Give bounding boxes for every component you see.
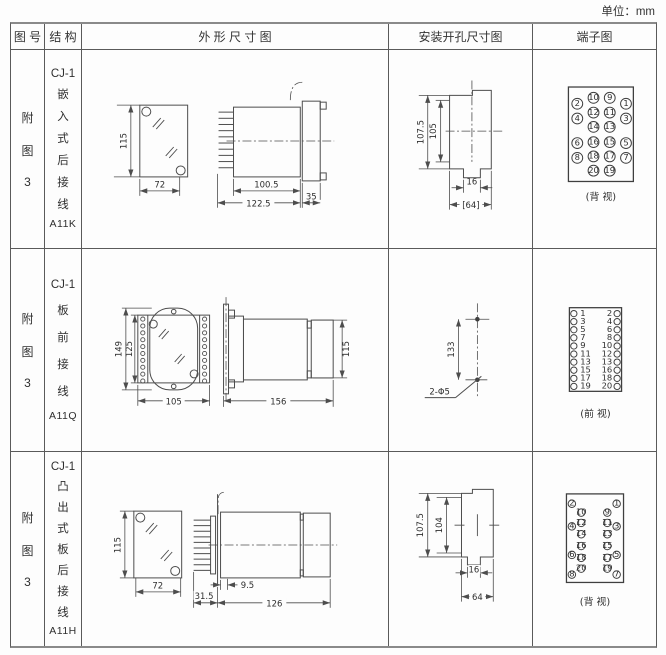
outline-drawing-a11h: 115 72 9.5 31.5 126 [82,452,388,646]
model-code: A11Q [49,410,77,422]
terminal-pin [571,318,577,324]
figure-char: 附 [21,109,33,126]
dim-flange: 35 [306,191,317,201]
dim-hole-spacing: 133 [446,341,456,357]
terminal-pin-number: 14 [576,528,587,538]
outline-drawing-cell-a11h: 115 72 9.5 31.5 126 [82,452,389,646]
glass-hatch [146,523,157,534]
structure-char: 后 [57,152,69,168]
header-outline-dimensions: 外 形 尺 寸 图 [82,24,389,50]
screw-terminal [141,317,145,321]
terminal-pin [614,350,620,356]
structure-cell-a11q: CJ-1 板 前 接 线 A11Q [45,249,82,452]
terminal-pin-number: 19 [580,380,591,390]
terminal-pin [614,326,620,332]
mounting-drawing-a11h: 107.5 104 16 64 [389,452,532,646]
header-terminal-diagram: 端子图 [533,24,656,50]
terminal-pin [614,334,620,340]
screw-terminal [203,337,207,341]
terminal-pin-number: 13 [604,121,615,131]
dim-inner-height: 125 [124,340,134,356]
terminal-pin-number: 11 [604,106,615,116]
terminal-diagram-a11k: 101214161820 91113151719 2468 1357 (背 视) [533,50,656,249]
screw-terminal [141,372,145,376]
glass-hatch [153,118,164,129]
screw-terminal [203,344,207,348]
terminal-pin-number: 16 [588,136,599,146]
terminal-pin [571,350,577,356]
screw-terminal [141,365,145,369]
terminal-pin-number: 15 [604,136,615,146]
structure-char: 板 [57,541,69,557]
screw-terminal [141,351,145,355]
dim-offset: 9.5 [241,580,254,590]
figure-number-cell: 附 图 3 [11,452,45,646]
terminal-pin-number: 4 [569,520,574,530]
outline-drawing-cell-a11q: 149 125 105 156 115 [82,249,389,452]
terminal-pin-number: 14 [588,121,599,131]
screw-terminal [203,330,207,334]
unit-label: 单位：mm [601,3,655,19]
terminal-pin-number: 10 [576,507,587,517]
terminal-pin [614,318,620,324]
terminal-strip [203,317,207,383]
terminal-pin-number: 8 [569,569,574,579]
terminal-pin-number: 19 [602,563,613,573]
figure-number-cell: 附 图 3 [11,249,45,452]
terminal-strip [141,317,145,383]
dim-side-height: 115 [341,340,351,356]
terminal-pin-number: 5 [623,137,628,147]
terminal-pin-number: 1 [614,498,619,508]
terminal-pin-number: 17 [602,552,613,562]
outline-drawing-a11k: 115 72 100.5 122.5 35 [82,50,388,249]
screw-terminal [141,337,145,341]
structure-char: 前 [57,329,69,345]
screw-terminal [203,372,207,376]
terminal-diagram-a11q: 135791113151719 2468101213161820 (前 视) [533,249,656,452]
terminal-pin-number: 8 [575,152,580,162]
dimension-table: 图 号 结 构 外 形 尺 寸 图 安装开孔尺寸图 端子图 附 图 3 CJ-1… [10,22,657,648]
terminal-pin-number: 3 [614,520,619,530]
header-structure: 结 构 [45,24,82,50]
terminal-pin [571,310,577,316]
figure-char: 3 [24,376,31,390]
structure-char: 接 [57,174,69,190]
glass-hatch [161,550,172,561]
dim-body-length: 100.5 [254,179,278,189]
dim-body-length: 156 [270,396,286,406]
screw-terminal [203,323,207,327]
figure-char: 3 [24,175,31,189]
terminal-pin [614,367,620,373]
structure-char: 线 [57,383,69,399]
dim-outer-height: 149 [113,340,123,356]
structure-char: 式 [57,520,69,536]
terminal-pin-number: 19 [604,164,615,174]
dim-cutout-width: 64 [472,592,483,602]
terminal-pin [614,375,620,381]
structure-char: 凸 [57,478,69,494]
dim-pin-length: 31.5 [195,591,214,601]
terminal-pin [614,383,620,389]
dim-slot-width: 16 [467,176,478,186]
glass-hatch [175,353,185,363]
dim-front-width: 105 [166,396,182,406]
screw-terminal [203,365,207,369]
terminal-pin-number: 2 [569,498,574,508]
model-label: CJ-1 [51,279,75,291]
terminal-pin-number: 10 [588,92,599,102]
structure-char: 接 [57,583,69,599]
glass-hatch [166,147,177,158]
terminal-pin [571,383,577,389]
pin-rows [219,112,234,168]
figure-char: 附 [21,509,33,526]
mounting-hole [475,316,480,321]
terminal-diagram-cell-a11h: 101214161820 91113151719 2468 1357 (背 视) [533,452,656,646]
screw-terminal [203,351,207,355]
terminal-pin-number: 20 [602,380,613,390]
figure-char: 图 [21,142,33,159]
screw-terminal [141,330,145,334]
structure-char: 板 [57,302,69,318]
terminal-pin-number: 7 [623,152,628,162]
structure-char: 出 [57,499,69,515]
terminal-pin-number: 6 [575,137,580,147]
model-code: A11H [49,625,77,637]
dim-total-length: 122.5 [246,198,270,208]
figure-number-cell: 附 图 3 [11,50,45,249]
terminal-diagram-cell-a11k: 101214161820 91113151719 2468 1357 (背 视) [533,50,656,249]
terminal-pin-number: 16 [576,540,587,550]
outline-drawing-a11q: 149 125 105 156 115 [82,249,388,452]
model-label: CJ-1 [51,68,75,80]
terminal-pin [614,342,620,348]
structure-cell-a11k: CJ-1 嵌 入 式 后 接 线 A11K [45,50,82,249]
dim-slot-width: 16 [469,564,480,574]
screw-terminal [141,358,145,362]
terminal-pin-number: 9 [605,507,610,517]
terminal-pin-number: 4 [575,112,580,122]
terminal-view-label: (前 视) [580,406,610,419]
terminal-pin-number: 12 [576,517,587,527]
figure-char: 图 [21,542,33,559]
mounting-drawing-cell-a11k: 107.5 105 16 [64] [389,50,533,249]
screw-terminal [203,317,207,321]
terminal-view-label: (背 视) [580,595,610,608]
figure-char: 附 [21,310,33,327]
dim-cutout-outer-height: 107.5 [415,513,425,537]
terminal-pin [571,326,577,332]
structure-char: 嵌 [57,86,69,102]
terminal-pin [571,375,577,381]
dim-front-height: 115 [118,132,128,148]
pin-rows [194,520,211,570]
terminal-pin-number: 18 [576,552,587,562]
terminal-pin [614,310,620,316]
mounting-drawing-a11q: 133 2-Φ5 [389,249,532,452]
structure-char: 式 [57,130,69,146]
terminal-pin-number: 13 [602,528,613,538]
terminal-pin-number: 18 [588,150,599,160]
dim-front-width: 72 [152,580,163,590]
terminal-pin [571,358,577,364]
dim-front-height: 115 [112,537,122,553]
structure-char: 后 [57,562,69,578]
terminal-pin-number: 5 [614,549,619,559]
structure-char: 线 [57,604,69,620]
mounting-drawing-cell-a11q: 133 2-Φ5 [389,249,533,452]
glass-hatch [159,329,169,339]
mounting-drawing-cell-a11h: 107.5 104 16 64 [389,452,533,646]
mounting-drawing-a11k: 107.5 105 16 [64] [389,50,532,249]
screw-terminal [203,358,207,362]
terminal-pin-number: 17 [604,150,615,160]
terminal-pin-number: 20 [588,164,599,174]
dim-cutout-width: [64] [462,200,479,210]
dim-cutout-inner-height: 104 [434,517,444,533]
terminal-pin [571,334,577,340]
terminal-pin-number: 9 [607,92,612,102]
terminal-diagram-cell-a11q: 135791113151719 2468101213161820 (前 视) [533,249,656,452]
terminal-pin-number: 3 [623,112,628,122]
model-label: CJ-1 [51,461,75,473]
structure-char: 接 [57,356,69,372]
dim-cutout-inner-height: 105 [428,123,438,139]
figure-char: 3 [24,575,31,589]
terminal-view-label: (背 视) [586,190,616,203]
terminal-pin-number: 7 [614,569,619,579]
terminal-pin-number: 6 [569,549,574,559]
structure-char: 入 [57,108,69,124]
technical-sheet: 单位：mm 图 号 结 构 外 形 尺 寸 图 安装开孔尺寸图 端子图 附 图 … [0,0,666,655]
screw-terminal [141,323,145,327]
terminal-pin-number: 11 [602,517,613,527]
terminal-pin [571,367,577,373]
dim-body-length: 126 [266,598,282,608]
dim-cutout-outer-height: 107.5 [415,120,425,144]
structure-char: 线 [57,196,69,212]
terminal-pin [614,358,620,364]
screw-terminal [141,344,145,348]
terminal-pin-number: 1 [623,98,628,108]
header-figure-number: 图 号 [11,24,45,50]
terminal-pin-number: 20 [576,563,587,573]
terminal-pin [571,342,577,348]
model-code: A11K [50,218,77,230]
outline-drawing-cell-a11k: 115 72 100.5 122.5 35 [82,50,389,249]
hole-diameter-label: 2-Φ5 [429,386,449,396]
terminal-diagram-a11h: 101214161820 91113151719 2468 1357 (背 视) [533,452,656,646]
terminal-pin-number: 2 [575,98,580,108]
figure-char: 图 [21,343,33,360]
dim-front-width: 72 [154,179,165,189]
terminal-pin-number: 12 [588,106,599,116]
structure-cell-a11h: CJ-1 凸 出 式 板 后 接 线 A11H [45,452,82,646]
header-mounting-holes: 安装开孔尺寸图 [389,24,533,50]
terminal-pin-number: 15 [602,540,613,550]
